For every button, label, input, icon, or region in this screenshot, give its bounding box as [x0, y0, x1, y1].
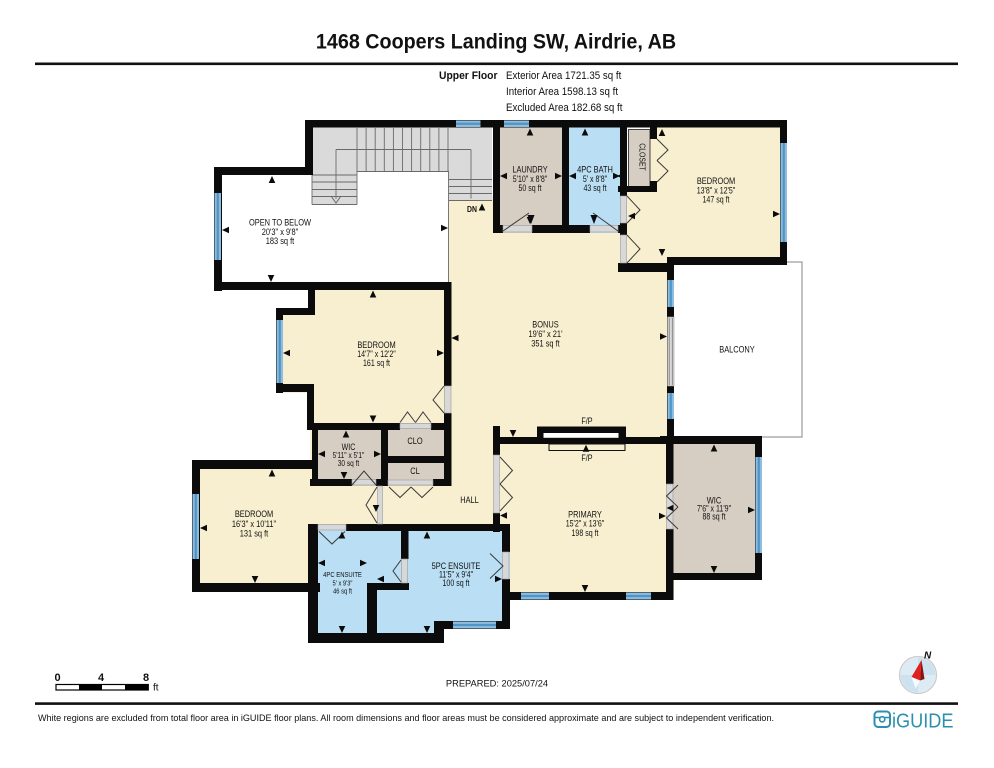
svg-text:Interior Area 1598.13 sq ft: Interior Area 1598.13 sq ft: [506, 87, 618, 98]
svg-text:CLO: CLO: [407, 435, 423, 446]
svg-text:183 sq ft: 183 sq ft: [266, 235, 295, 246]
svg-text:30 sq ft: 30 sq ft: [338, 458, 359, 468]
svg-text:147 sq ft: 147 sq ft: [703, 195, 731, 205]
svg-text:100 sq ft: 100 sq ft: [443, 578, 471, 588]
svg-text:iGUIDE: iGUIDE: [892, 709, 954, 732]
svg-text:0: 0: [54, 672, 60, 684]
svg-text:4: 4: [98, 672, 105, 684]
svg-text:DN: DN: [467, 204, 477, 214]
svg-text:131 sq ft: 131 sq ft: [240, 528, 269, 539]
svg-text:88 sq ft: 88 sq ft: [702, 512, 726, 522]
svg-text:F/P: F/P: [581, 453, 592, 463]
svg-text:161 sq ft: 161 sq ft: [363, 358, 391, 368]
svg-text:Excluded Area 182.68 sq ft: Excluded Area 182.68 sq ft: [506, 103, 623, 114]
svg-text:50 sq ft: 50 sq ft: [518, 183, 542, 193]
svg-text:BALCONY: BALCONY: [719, 343, 755, 354]
svg-text:351 sq ft: 351 sq ft: [531, 337, 560, 348]
svg-text:PREPARED: 2025/07/24: PREPARED: 2025/07/24: [446, 679, 548, 689]
svg-text:5' x 9'3": 5' x 9'3": [333, 580, 353, 588]
svg-text:CL: CL: [410, 465, 420, 476]
svg-text:ft: ft: [153, 683, 159, 694]
svg-text:N: N: [924, 651, 932, 662]
svg-text:BEDROOM: BEDROOM: [697, 175, 735, 186]
svg-text:LAUNDRY: LAUNDRY: [512, 164, 548, 175]
svg-text:46 sq ft: 46 sq ft: [333, 588, 352, 596]
svg-text:F/P: F/P: [581, 416, 592, 426]
svg-text:198 sq ft: 198 sq ft: [572, 528, 600, 538]
svg-text:4PC BATH: 4PC BATH: [577, 164, 613, 175]
svg-text:8: 8: [143, 672, 149, 684]
svg-text:Upper Floor: Upper Floor: [439, 70, 497, 82]
svg-text:Exterior Area 1721.35 sq ft: Exterior Area 1721.35 sq ft: [506, 71, 621, 82]
svg-text:White regions are excluded fro: White regions are excluded from total fl…: [38, 713, 774, 723]
svg-text:4PC ENSUITE: 4PC ENSUITE: [323, 571, 362, 579]
svg-text:43 sq ft: 43 sq ft: [583, 183, 607, 193]
svg-text:CLOSET: CLOSET: [637, 143, 647, 171]
svg-text:1468 Coopers Landing SW, Airdr: 1468 Coopers Landing SW, Airdrie, AB: [316, 31, 676, 54]
svg-text:HALL: HALL: [460, 494, 479, 505]
